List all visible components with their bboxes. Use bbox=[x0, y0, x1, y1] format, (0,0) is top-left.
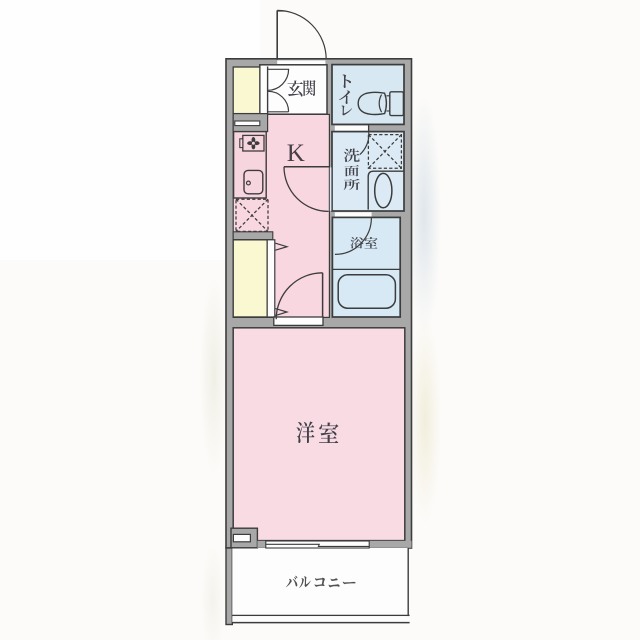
svg-text:K: K bbox=[287, 140, 305, 167]
